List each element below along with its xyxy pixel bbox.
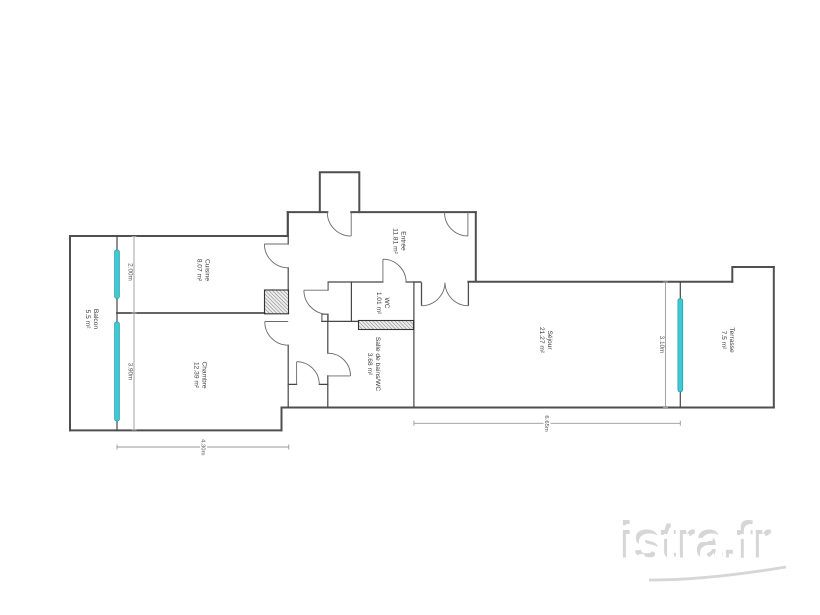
svg-text:Chambre: Chambre [201,361,208,388]
svg-text:Séjour: Séjour [546,330,553,350]
svg-text:5.5 m²: 5.5 m² [84,310,91,329]
svg-text:7.5 m²: 7.5 m² [720,331,727,350]
svg-text:Balcon: Balcon [92,309,99,329]
svg-text:4.30m: 4.30m [199,439,205,455]
svg-text:Salle de bains/WC: Salle de bains/WC [374,337,381,391]
svg-text:2.00m: 2.00m [127,263,134,281]
svg-text:WC: WC [383,298,390,309]
svg-text:12.39 m²: 12.39 m² [193,362,200,389]
svg-text:1.01 m²: 1.01 m² [375,292,382,315]
svg-text:3.10m: 3.10m [658,336,665,354]
svg-text:Entrée: Entrée [400,231,407,251]
svg-text:3.68 m²: 3.68 m² [366,353,373,376]
svg-text:8.07 m²: 8.07 m² [196,259,203,282]
svg-text:istra.fr: istra.fr [623,516,775,574]
svg-text:Terrasse: Terrasse [728,327,735,353]
svg-text:3.90m: 3.90m [127,363,134,381]
svg-text:11.81 m²: 11.81 m² [392,228,399,254]
svg-text:Cuisine: Cuisine [204,259,211,281]
svg-text:21.27 m²: 21.27 m² [538,327,545,354]
svg-text:6.65m: 6.65m [543,415,549,431]
